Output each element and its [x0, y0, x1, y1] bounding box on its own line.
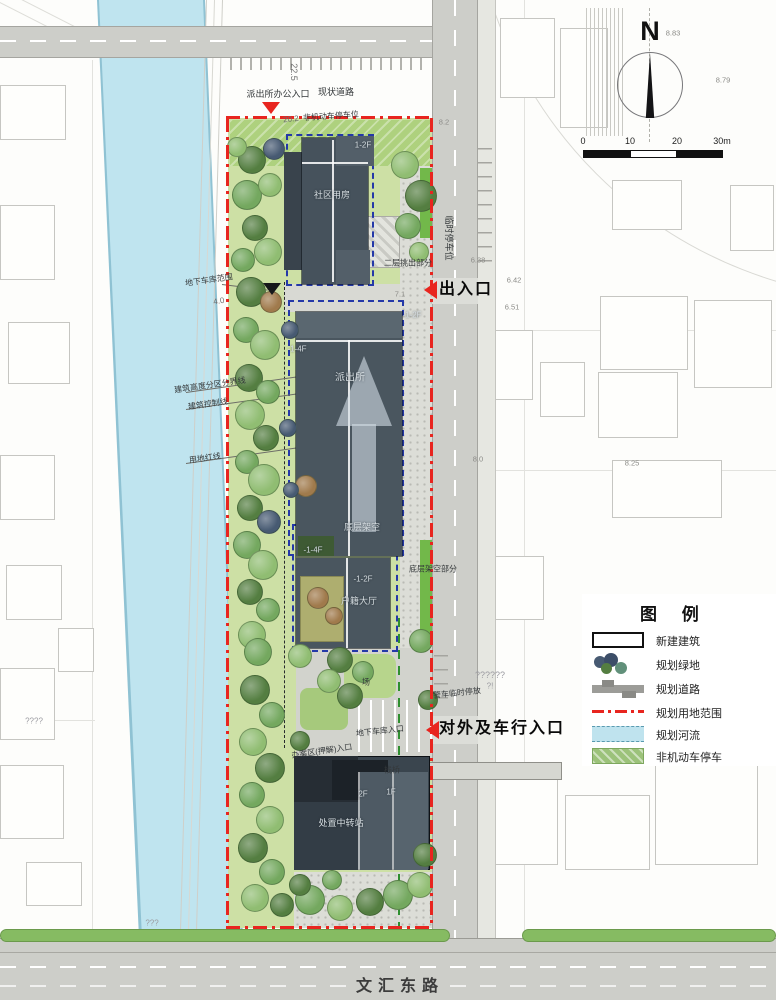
context-building: [540, 362, 585, 417]
community-building-wing: [284, 152, 304, 270]
tree: [327, 895, 353, 921]
road-centerline: [454, 0, 456, 940]
map-label: ????: [25, 718, 43, 727]
sidewalk: [478, 0, 496, 940]
map-label: 现状道路: [318, 88, 354, 98]
spot-elevation: 6.51: [505, 303, 520, 312]
scale-tick: 20: [672, 136, 682, 146]
map-label: -1-2F: [353, 576, 372, 585]
roof-ridge: [302, 162, 368, 164]
context-building: [58, 628, 94, 672]
legend-label: 规划绿地: [656, 657, 700, 673]
site-boundary-symbol: [592, 710, 644, 713]
scale-bar-segment: [677, 150, 723, 158]
context-building: [0, 205, 55, 280]
context-building: [655, 762, 758, 865]
context-building: [500, 18, 555, 98]
roof-arrow-head: [336, 356, 392, 426]
roof-arrow-shaft: [352, 424, 376, 532]
spot-elevation: 8.2: [439, 118, 449, 127]
map-label: ???: [145, 920, 158, 929]
map-label: -1-4F: [303, 547, 322, 556]
tree: [289, 874, 311, 896]
green-median: [522, 929, 776, 942]
parcel-line: [92, 60, 93, 930]
road-centerline: [0, 40, 478, 42]
garage-extent-line: [284, 282, 285, 748]
north-label: N: [640, 17, 660, 47]
community-building-annex: [336, 250, 370, 284]
tree: [258, 173, 282, 197]
context-building: [565, 795, 650, 870]
tree: [240, 675, 270, 705]
spot-elevation: 8.0: [473, 455, 483, 464]
legend-label: 新建建筑: [656, 633, 700, 649]
map-label: 派出所办公入口: [246, 90, 309, 100]
context-building: [0, 455, 55, 520]
legend-title: 图 例: [640, 600, 709, 625]
map-label: 1F: [386, 789, 395, 798]
tree: [231, 248, 255, 272]
map-label: 出入口: [439, 281, 493, 299]
legend-label: 规划道路: [656, 681, 700, 697]
tree: [255, 753, 285, 783]
map-label: 派出所: [335, 373, 365, 384]
map-label: 2F: [358, 791, 367, 800]
lane-dashes: [0, 966, 776, 968]
context-building: [730, 185, 774, 251]
spot-elevation: 6.42: [507, 276, 522, 285]
legend-item-non-motor-parking: 非机动车停车: [592, 746, 772, 766]
map-label: 户籍大厅: [341, 597, 377, 607]
context-building: [26, 862, 82, 906]
planned-green-symbol: [592, 656, 644, 672]
tree: [256, 380, 280, 404]
new-building-symbol: [592, 632, 644, 648]
map-label: 临时停车位: [443, 215, 453, 260]
entrance-arrow-icon: [426, 721, 439, 739]
entrance-arrow-icon: [424, 281, 437, 299]
scale-bar-segment: [583, 150, 630, 158]
legend-item-planned-road: 规划道路: [592, 678, 772, 698]
curb-ticks: [230, 58, 430, 70]
tree: [395, 213, 421, 239]
tree: [281, 321, 299, 339]
tree: [250, 330, 280, 360]
spot-elevation: 6.38: [471, 256, 486, 265]
site-boundary-south: [226, 926, 433, 929]
scale-tick: 10: [625, 136, 635, 146]
context-building: [694, 300, 772, 388]
scale-bar-segment: [630, 150, 677, 158]
site-plan-canvas: N 0 10 20 30m 图 例 新建建筑 规划绿地 规划道路: [0, 0, 776, 1000]
tree: [239, 728, 267, 756]
map-label: 场: [362, 679, 370, 688]
tree: [238, 833, 268, 863]
map-label: -1-2F: [402, 312, 421, 321]
tree: [248, 464, 280, 496]
legend-item-planned-green: 规划绿地: [592, 654, 772, 674]
tree: [259, 702, 285, 728]
map-label: 处置中转站: [318, 819, 363, 829]
tree: [356, 888, 384, 916]
spot-elevation: 8.25: [625, 459, 640, 468]
spot-elevation: 8.83: [666, 29, 681, 38]
tree: [307, 587, 329, 609]
context-building: [0, 85, 66, 140]
legend-item-site-boundary: 规划用地范围: [592, 702, 772, 722]
parking-bay-ticks: [478, 148, 492, 268]
planned-river-symbol: [592, 726, 644, 742]
map-label: 对外及车行入口: [439, 720, 565, 738]
context-building: [600, 296, 688, 370]
legend-item-planned-river: 规划河流: [592, 724, 772, 744]
context-building: [0, 765, 64, 839]
tree: [256, 598, 280, 622]
tree: [322, 870, 342, 890]
tree: [337, 683, 363, 709]
context-building: [612, 460, 722, 518]
map-label: 20.2: [283, 115, 299, 125]
legend-item-new-building: 新建建筑: [592, 630, 772, 650]
tree: [259, 859, 285, 885]
tree: [242, 215, 268, 241]
tree: [283, 482, 299, 498]
scale-tick: 0: [580, 136, 585, 146]
tree: [413, 843, 437, 867]
reference-marker-icon: [262, 102, 280, 114]
context-building: [598, 372, 678, 438]
tree: [253, 425, 279, 451]
map-label: 栈桥: [384, 767, 400, 776]
tree: [288, 644, 312, 668]
map-label: 22.5: [288, 63, 298, 81]
map-label: 4.0: [213, 297, 225, 308]
map-label: ?!: [487, 683, 494, 692]
context-building: [6, 565, 62, 620]
green-median: [0, 929, 450, 942]
legend-label: 规划河流: [656, 727, 700, 743]
tree: [325, 607, 343, 625]
map-label: 社区用房: [314, 191, 350, 201]
reference-marker-icon: [263, 283, 281, 295]
transfer-station-panel: [294, 802, 358, 870]
tree: [257, 510, 281, 534]
tree: [241, 884, 269, 912]
map-label: 底层架空部分: [409, 566, 457, 575]
context-building: [612, 180, 682, 230]
road-line: [0, 952, 776, 953]
non-motor-parking-symbol: [592, 748, 644, 764]
map-label: 二层挑出部分: [384, 260, 432, 269]
context-building: [0, 668, 55, 740]
map-label: ??????: [475, 671, 505, 681]
tree: [227, 137, 247, 157]
tree: [248, 550, 278, 580]
map-label: 1-2F: [355, 142, 371, 151]
scale-tick: 30m: [713, 136, 731, 146]
tree: [263, 138, 285, 160]
tree: [391, 151, 419, 179]
map-label: -1-4F: [287, 346, 306, 355]
planned-road-symbol: [592, 680, 644, 696]
site-boundary-east: [430, 118, 433, 928]
police-station-top-strip: [296, 312, 402, 338]
context-building: [8, 322, 70, 384]
spot-elevation: 8.79: [716, 76, 731, 85]
existing-road-top: [0, 26, 478, 58]
tree: [279, 419, 297, 437]
map-label: 底层架空: [344, 523, 380, 533]
spot-elevation: 7.1: [395, 290, 405, 299]
tree: [239, 782, 265, 808]
tree: [244, 638, 272, 666]
map-label: 文汇东路: [356, 978, 444, 996]
legend-label: 非机动车停车: [656, 749, 722, 765]
tree: [254, 238, 282, 266]
tree: [270, 893, 294, 917]
tree: [256, 806, 284, 834]
site-boundary-west: [226, 118, 229, 928]
legend-label: 规划用地范围: [656, 705, 722, 721]
legend: 图 例 新建建筑 规划绿地 规划道路 规划用地范围 规划河流: [582, 594, 776, 766]
